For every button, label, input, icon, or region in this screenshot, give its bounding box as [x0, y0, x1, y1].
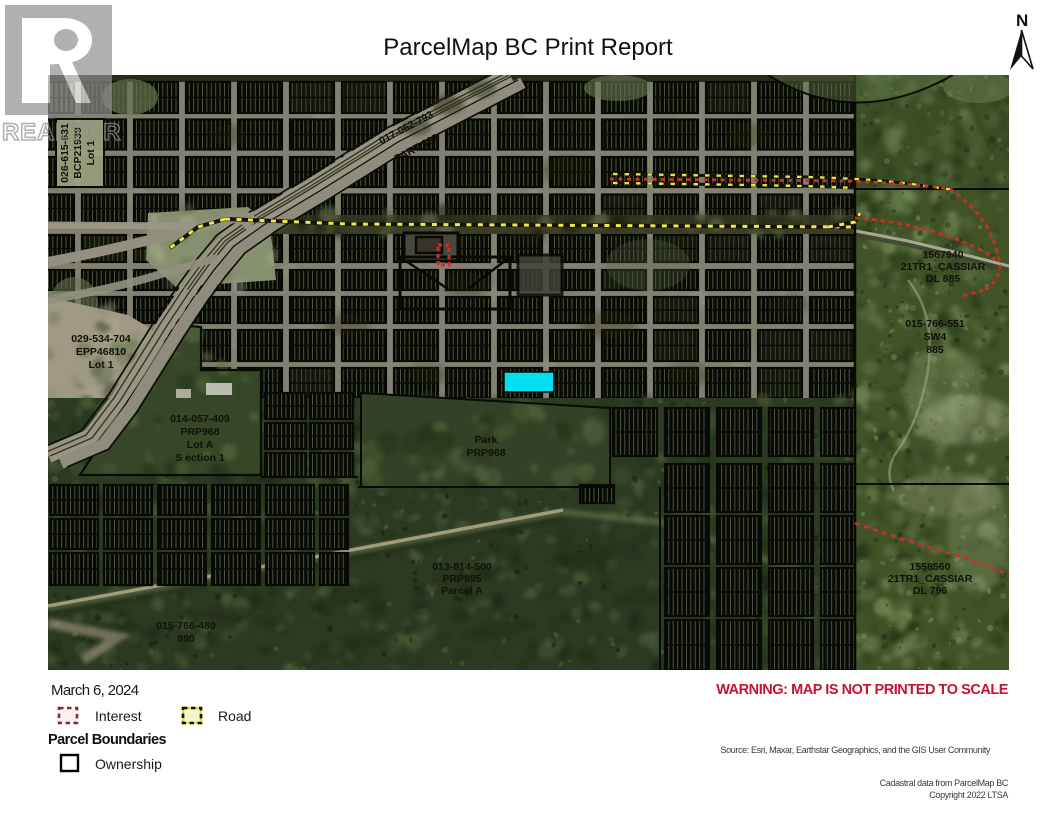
svg-text:N: N	[1016, 11, 1028, 30]
svg-text:REALTOR: REALTOR	[2, 119, 121, 146]
